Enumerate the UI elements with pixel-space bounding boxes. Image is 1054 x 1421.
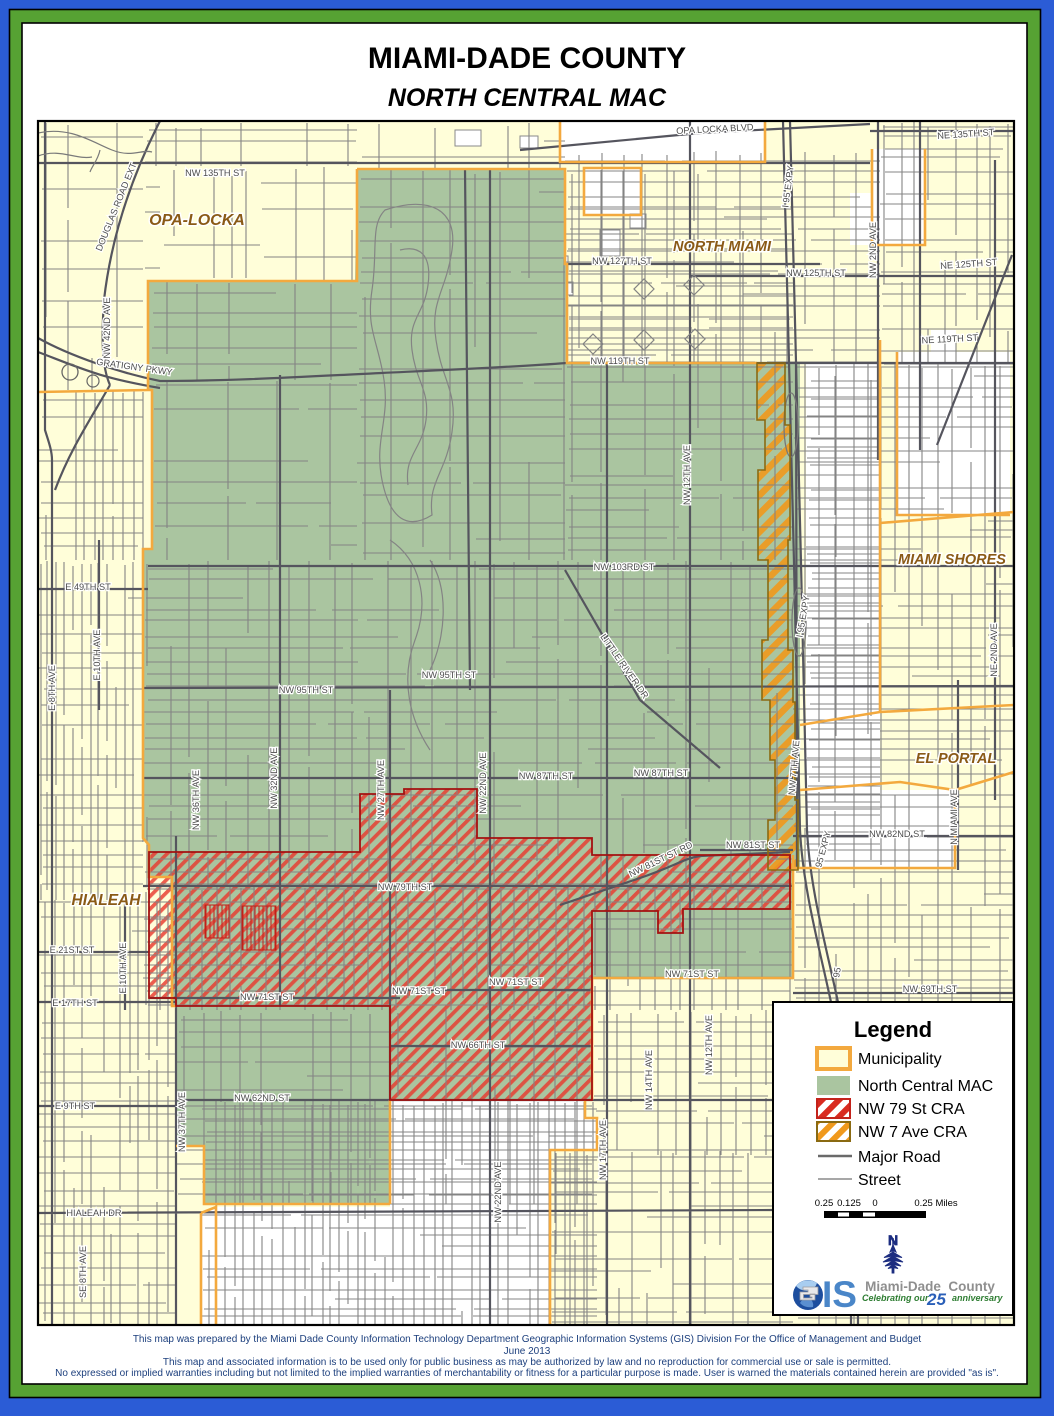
svg-text:NW 119TH ST: NW 119TH ST	[590, 356, 649, 366]
svg-text:NW 87TH ST: NW 87TH ST	[634, 768, 689, 778]
svg-text:MIAMI SHORES: MIAMI SHORES	[898, 552, 1006, 568]
svg-text:E 17TH ST: E 17TH ST	[52, 998, 98, 1008]
svg-text:E 10TH AVE: E 10TH AVE	[92, 630, 102, 681]
svg-text:0.25 Miles: 0.25 Miles	[914, 1198, 958, 1209]
svg-text:NW 71ST ST: NW 71ST ST	[392, 986, 446, 996]
svg-text:Major Road: Major Road	[858, 1149, 941, 1166]
svg-text:NW 42ND AVE: NW 42ND AVE	[102, 297, 112, 358]
svg-text:0: 0	[872, 1198, 877, 1209]
svg-text:North Central MAC: North Central MAC	[858, 1078, 993, 1095]
svg-text:NW 32ND AVE: NW 32ND AVE	[269, 747, 279, 808]
svg-text:MIAMI-DADE COUNTY: MIAMI-DADE COUNTY	[368, 42, 686, 75]
svg-text:NW 62ND ST: NW 62ND ST	[234, 1093, 290, 1103]
svg-text:E 9TH ST: E 9TH ST	[55, 1101, 96, 1111]
svg-text:No expressed or implied warran: No expressed or implied warranties inclu…	[55, 1368, 999, 1379]
svg-text:NW 69TH ST: NW 69TH ST	[903, 984, 958, 994]
svg-text:NW 135TH ST: NW 135TH ST	[185, 168, 245, 178]
svg-text:95: 95	[831, 967, 843, 979]
svg-text:NW 12TH AVE: NW 12TH AVE	[704, 1015, 714, 1075]
svg-text:NW 36TH AVE: NW 36TH AVE	[191, 770, 201, 830]
svg-text:NW 71ST ST: NW 71ST ST	[489, 977, 543, 987]
svg-text:EL PORTAL: EL PORTAL	[916, 751, 997, 767]
svg-text:NW 81ST ST: NW 81ST ST	[726, 840, 780, 850]
svg-text:NW 66TH ST: NW 66TH ST	[451, 1040, 506, 1050]
svg-text:0.125: 0.125	[837, 1198, 861, 1209]
svg-text:NW 22ND AVE: NW 22ND AVE	[478, 752, 488, 813]
svg-text:NW 71ST ST: NW 71ST ST	[665, 969, 719, 979]
svg-text:anniversary: anniversary	[952, 1293, 1004, 1303]
svg-text:NW 95TH ST: NW 95TH ST	[279, 685, 334, 695]
svg-text:NW 2ND AVE: NW 2ND AVE	[868, 222, 878, 278]
svg-text:Celebrating our: Celebrating our	[862, 1293, 929, 1303]
svg-text:NW 103RD ST: NW 103RD ST	[594, 562, 655, 572]
svg-text:Street: Street	[858, 1172, 901, 1189]
svg-text:NW 79 St CRA: NW 79 St CRA	[858, 1101, 965, 1118]
svg-text:NW 95TH ST: NW 95TH ST	[422, 670, 477, 680]
svg-text:Legend: Legend	[854, 1017, 932, 1042]
svg-text:NW 14TH AVE: NW 14TH AVE	[644, 1050, 654, 1110]
svg-text:25: 25	[926, 1290, 946, 1309]
svg-text:June 2013: June 2013	[504, 1346, 551, 1357]
svg-text:NW 82ND ST: NW 82ND ST	[869, 829, 925, 839]
svg-text:NW 71ST ST: NW 71ST ST	[240, 992, 294, 1002]
svg-text:E 8TH AVE: E 8TH AVE	[47, 665, 57, 711]
svg-text:NW 125TH ST: NW 125TH ST	[786, 268, 846, 278]
svg-text:NORTH MIAMI: NORTH MIAMI	[673, 239, 772, 255]
svg-text:IS: IS	[822, 1274, 857, 1315]
svg-text:NORTH CENTRAL MAC: NORTH CENTRAL MAC	[388, 84, 667, 112]
svg-text:NW 22ND AVE: NW 22ND AVE	[493, 1161, 503, 1222]
svg-text:0.25: 0.25	[815, 1198, 834, 1209]
svg-text:NW 79TH ST: NW 79TH ST	[378, 882, 433, 892]
svg-text:HIALEAH: HIALEAH	[72, 892, 142, 909]
svg-text:NW 127TH ST: NW 127TH ST	[592, 256, 652, 266]
svg-text:This map was prepared by the M: This map was prepared by the Miami Dade …	[133, 1334, 922, 1345]
svg-text:E 21ST ST: E 21ST ST	[50, 945, 95, 955]
svg-text:NW 37TH AVE: NW 37TH AVE	[177, 1092, 187, 1152]
svg-text:E 10TH AVE: E 10TH AVE	[118, 943, 128, 994]
svg-text:N MIAMI AVE: N MIAMI AVE	[949, 789, 959, 844]
svg-text:SE 8TH AVE: SE 8TH AVE	[78, 1246, 88, 1298]
svg-text:OPA-LOCKA: OPA-LOCKA	[149, 212, 245, 229]
svg-text:NW 27TH AVE: NW 27TH AVE	[376, 760, 386, 820]
svg-text:This map and associated inform: This map and associated information is t…	[163, 1357, 891, 1368]
svg-text:NE 2ND AVE: NE 2ND AVE	[989, 623, 999, 676]
svg-text:Municipality: Municipality	[858, 1051, 942, 1068]
svg-text:NW 12TH AVE: NW 12TH AVE	[682, 445, 692, 505]
svg-text:NW 17TH AVE: NW 17TH AVE	[598, 1120, 608, 1180]
svg-text:NW 7 Ave CRA: NW 7 Ave CRA	[858, 1124, 967, 1141]
svg-text:HIALEAH DR: HIALEAH DR	[66, 1208, 122, 1218]
svg-text:NW 87TH ST: NW 87TH ST	[519, 771, 574, 781]
svg-text:E 49TH ST: E 49TH ST	[65, 582, 111, 592]
